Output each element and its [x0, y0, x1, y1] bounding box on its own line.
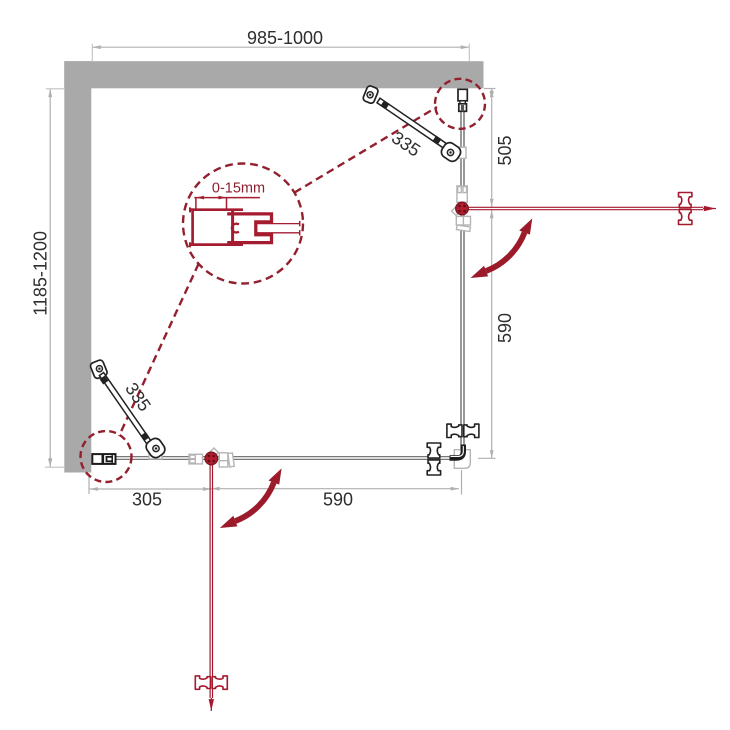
svg-text:985-1000: 985-1000	[247, 28, 323, 48]
svg-text:0-15mm: 0-15mm	[212, 181, 265, 197]
svg-text:590: 590	[495, 313, 515, 343]
svg-text:590: 590	[323, 490, 353, 510]
svg-text:1185-1200: 1185-1200	[31, 231, 51, 316]
svg-text:505: 505	[495, 135, 515, 165]
svg-text:305: 305	[132, 490, 162, 510]
